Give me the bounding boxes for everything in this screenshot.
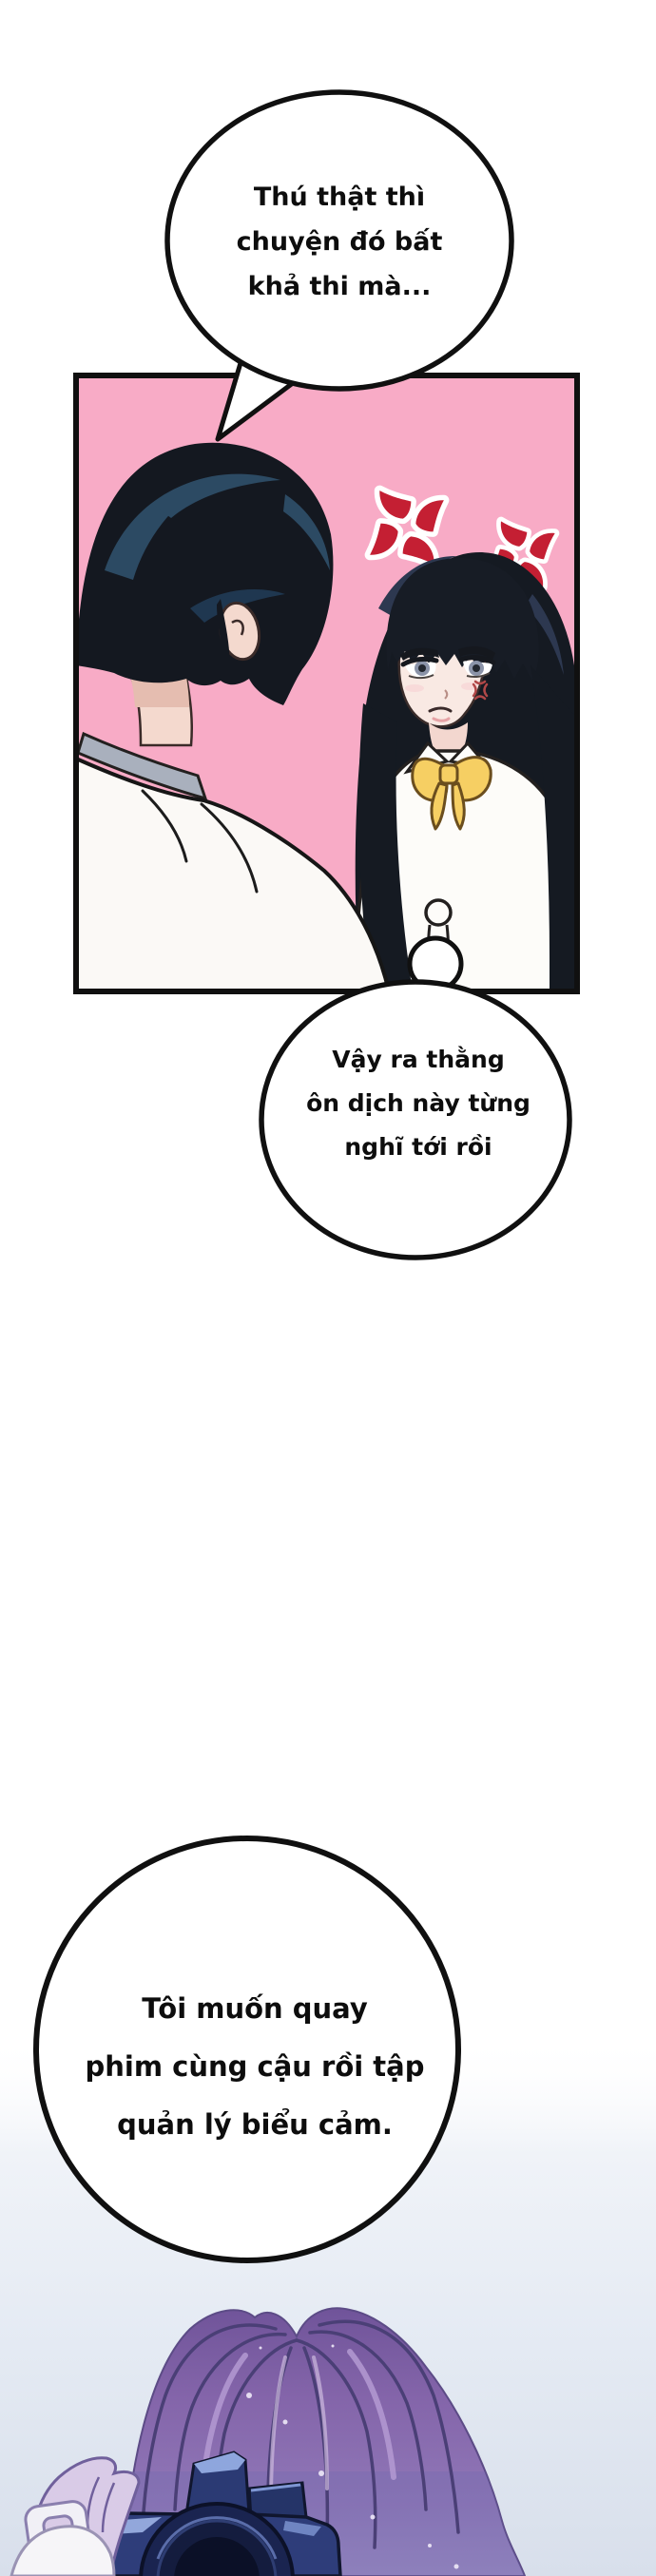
speech-bubble-3 (36, 1838, 458, 2260)
bubble-1-body (167, 92, 511, 389)
bubble-2-body (261, 982, 569, 1258)
shirt-button (426, 900, 451, 925)
blush-left (405, 684, 424, 692)
comic-page: Thú thật thì chuyện đó bất khả thi mà...… (0, 0, 656, 2576)
comic-artwork (0, 0, 656, 2576)
photographer-scene (0, 1838, 656, 2576)
comic-panel (76, 375, 582, 991)
